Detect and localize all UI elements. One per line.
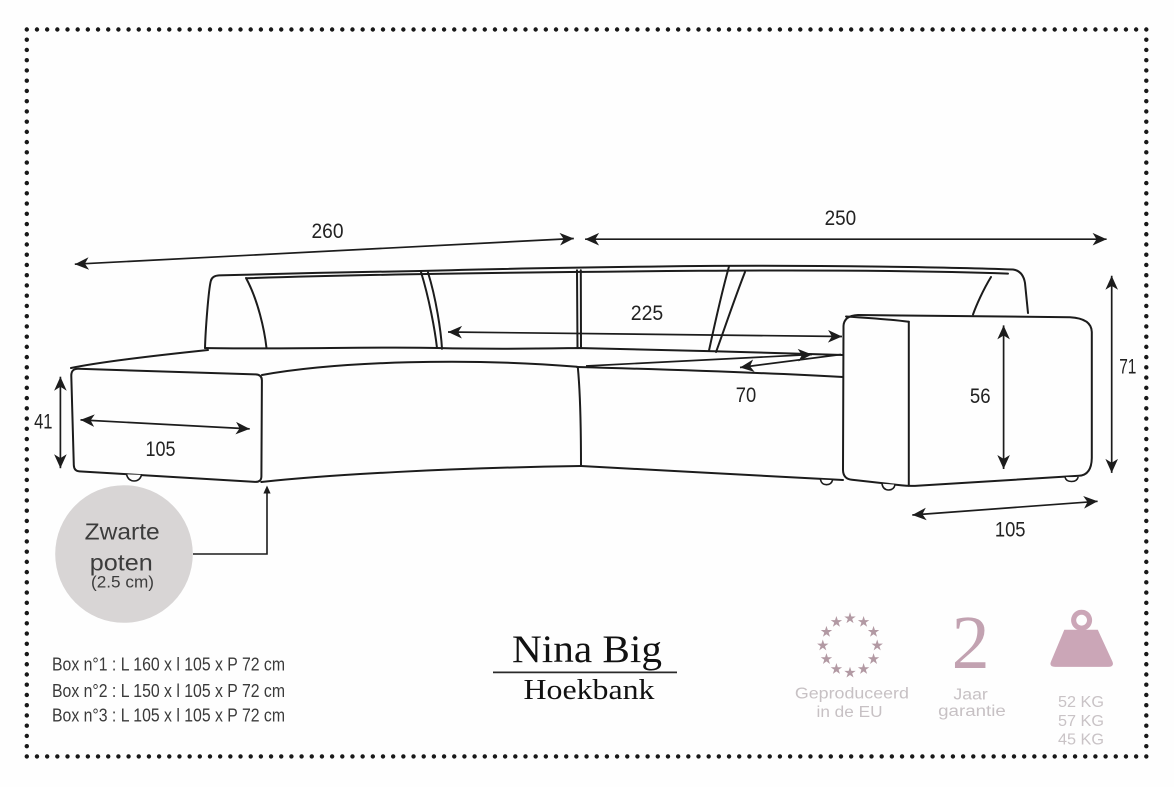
- svg-text:70: 70: [736, 384, 756, 407]
- svg-text:in de EU: in de EU: [817, 704, 883, 721]
- svg-text:Nina Big: Nina Big: [512, 628, 662, 671]
- svg-text:garantie: garantie: [938, 703, 1006, 720]
- svg-text:45 KG: 45 KG: [1058, 732, 1104, 749]
- svg-text:57 KG: 57 KG: [1058, 713, 1104, 730]
- svg-text:225: 225: [631, 302, 664, 325]
- svg-text:Zwarte: Zwarte: [85, 518, 160, 544]
- svg-text:105: 105: [995, 519, 1026, 542]
- svg-text:(2.5 cm): (2.5 cm): [91, 573, 154, 592]
- svg-text:Box n°2 : L 150 x l 105 x P 72: Box n°2 : L 150 x l 105 x P 72 cm: [52, 680, 285, 701]
- svg-text:56: 56: [970, 385, 991, 408]
- svg-text:250: 250: [825, 207, 857, 230]
- svg-text:71: 71: [1119, 355, 1136, 378]
- svg-text:41: 41: [34, 410, 52, 433]
- svg-text:Box n°1 : L 160 x l 105 x P 72: Box n°1 : L 160 x l 105 x P 72 cm: [52, 654, 285, 675]
- svg-text:Geproduceerd: Geproduceerd: [795, 686, 909, 703]
- svg-text:2: 2: [952, 601, 990, 685]
- svg-text:52 KG: 52 KG: [1058, 694, 1104, 711]
- svg-text:Box n°3 : L 105 x l 105 x P 72: Box n°3 : L 105 x l 105 x P 72 cm: [52, 705, 285, 726]
- svg-text:105: 105: [146, 438, 176, 461]
- svg-text:Jaar: Jaar: [953, 687, 987, 704]
- svg-text:260: 260: [312, 220, 344, 243]
- svg-text:Hoekbank: Hoekbank: [524, 674, 656, 706]
